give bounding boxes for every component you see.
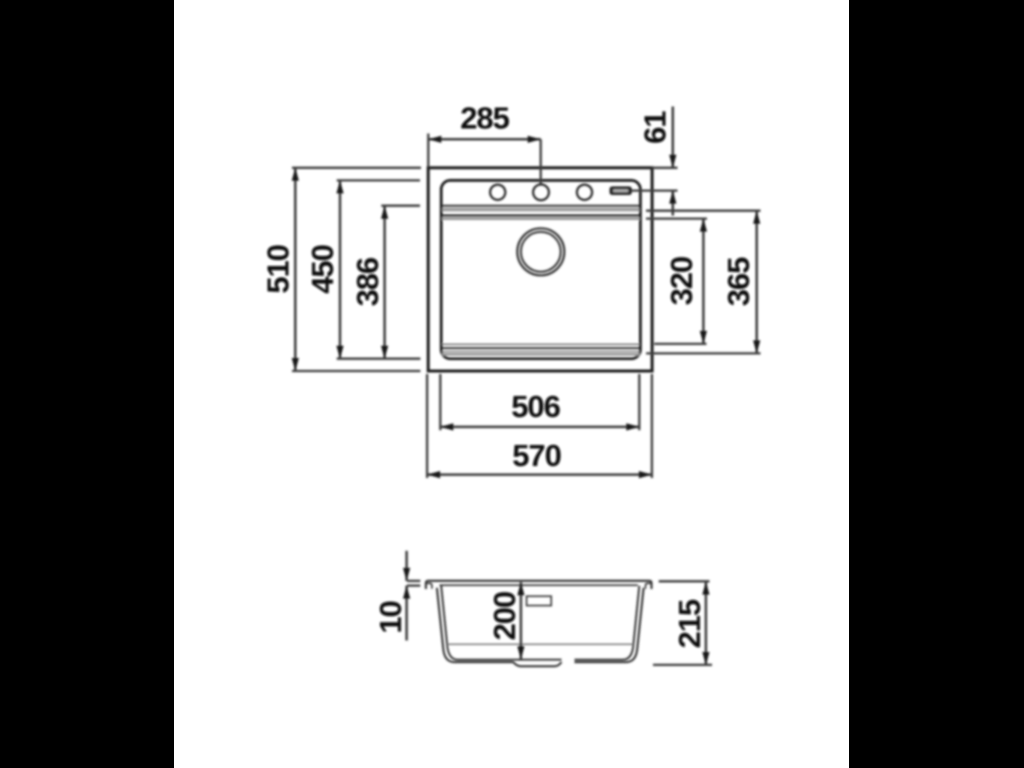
svg-text:320: 320 <box>664 257 699 305</box>
svg-text:285: 285 <box>460 101 509 136</box>
svg-text:10: 10 <box>373 601 408 633</box>
svg-text:365: 365 <box>721 257 756 306</box>
svg-text:200: 200 <box>487 592 522 640</box>
svg-text:570: 570 <box>512 438 560 473</box>
svg-text:450: 450 <box>305 245 340 293</box>
svg-text:215: 215 <box>672 599 707 648</box>
svg-text:506: 506 <box>511 389 560 424</box>
svg-text:510: 510 <box>260 245 295 293</box>
svg-text:386: 386 <box>350 257 385 306</box>
svg-text:61: 61 <box>637 111 672 144</box>
